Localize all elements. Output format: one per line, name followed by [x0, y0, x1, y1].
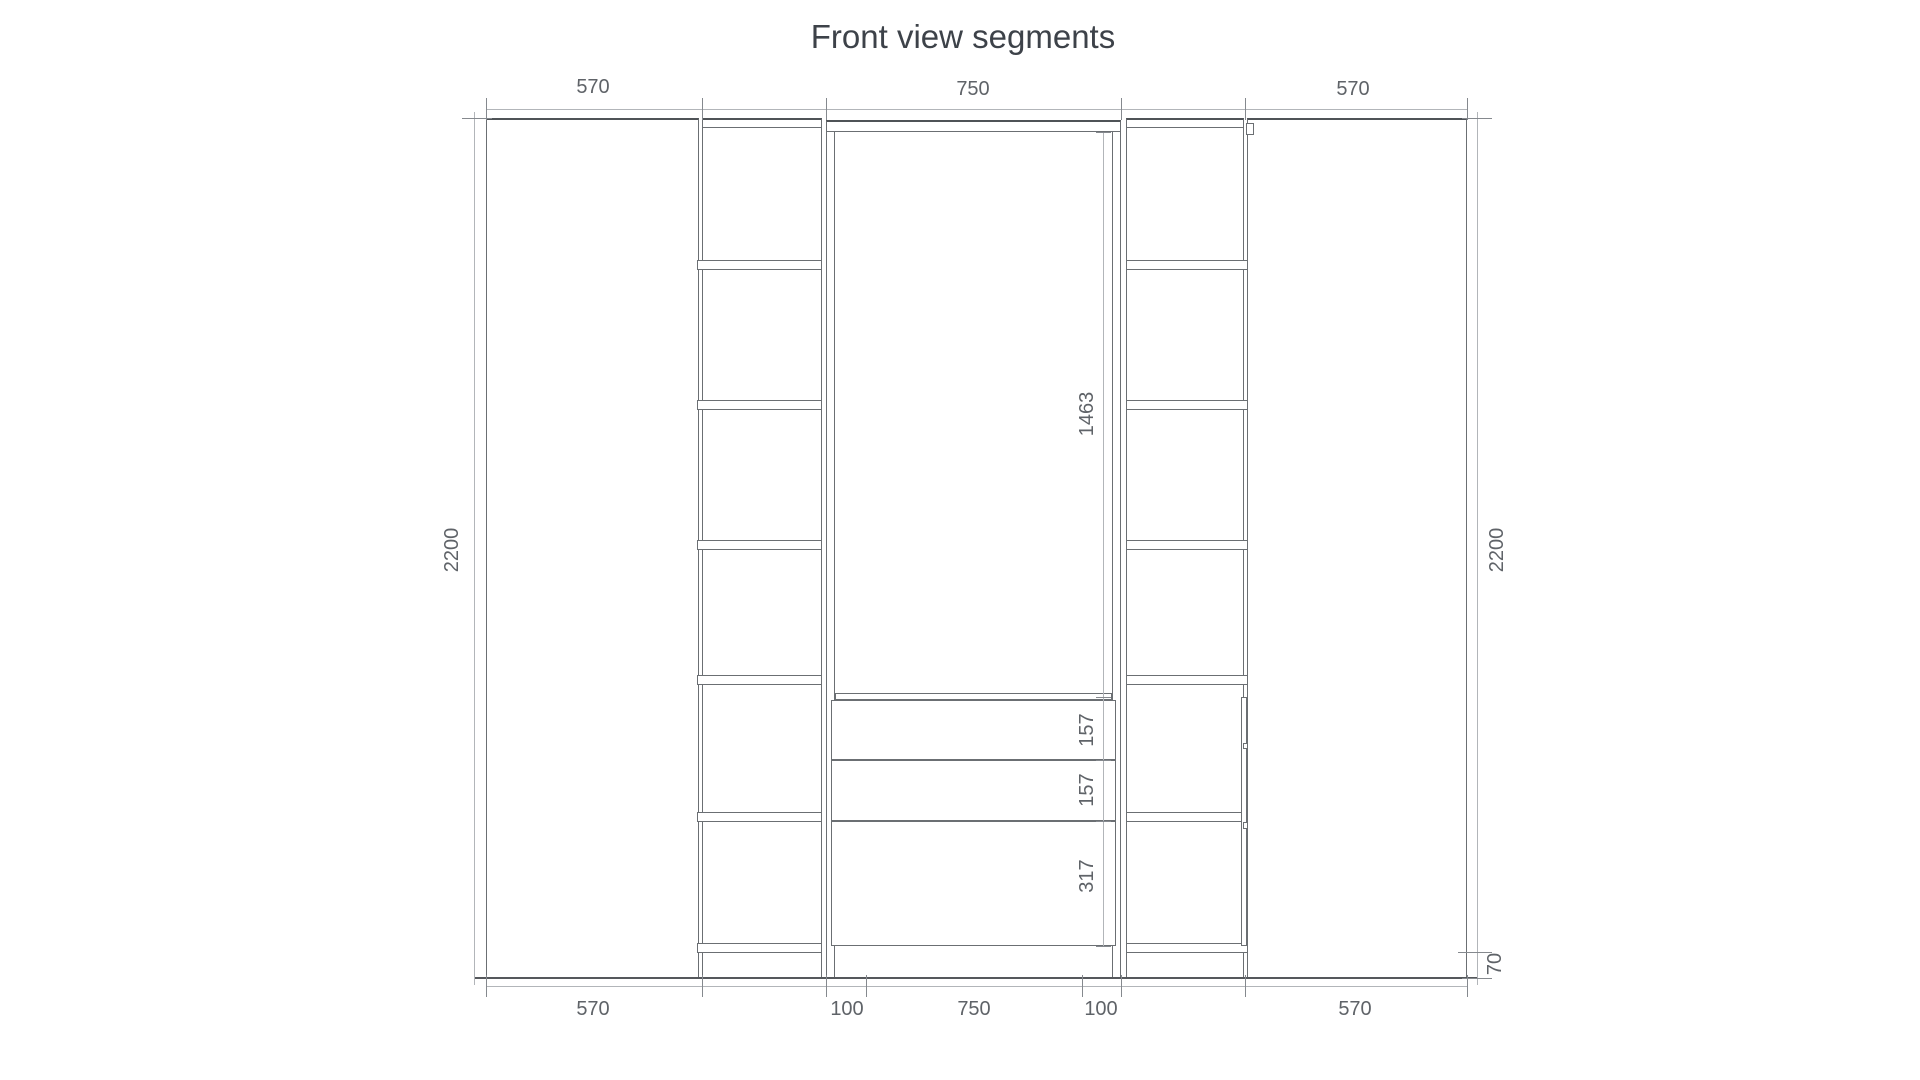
- dimension-line: [486, 109, 1467, 110]
- dim-label-hanging-height: 1463: [1076, 369, 1098, 459]
- shelf-divider: [697, 675, 822, 685]
- dimension-tick: [486, 975, 487, 997]
- dim-label-bottom-left: 570: [553, 998, 633, 1020]
- dim-label-bottom-inset-right: 100: [1061, 998, 1141, 1020]
- dimension-tick: [1096, 697, 1111, 698]
- left-column-top-panel-line: [703, 127, 821, 128]
- shelf-divider: [1126, 400, 1249, 410]
- shelf-divider: [1126, 812, 1249, 822]
- dimension-tick: [1096, 821, 1111, 822]
- shelf-divider: [697, 943, 822, 953]
- dim-label-top-center: 750: [933, 78, 1013, 100]
- drawer-front: [831, 700, 1116, 760]
- shelf-divider: [1126, 675, 1249, 685]
- shelf-divider: [1126, 260, 1249, 270]
- dimension-tick: [826, 98, 827, 120]
- dim-label-drawer-bottom: 317: [1076, 831, 1098, 921]
- dim-label-top-right: 570: [1313, 78, 1393, 100]
- dimension-tick: [1245, 975, 1246, 997]
- dimension-tick: [1082, 975, 1083, 997]
- dim-label-right-height: 2200: [1486, 505, 1508, 595]
- dimension-line: [1477, 112, 1478, 985]
- drawer-front: [831, 821, 1116, 946]
- floor-baseline: [474, 977, 1477, 979]
- dimension-tick: [1096, 760, 1111, 761]
- center-cabinet-top-panel: [826, 120, 1121, 132]
- right-door-panel: [1247, 118, 1467, 978]
- dimension-tick: [1462, 118, 1492, 119]
- dimension-tick: [702, 975, 703, 997]
- shelf-divider: [697, 540, 822, 550]
- dimension-line: [486, 986, 1467, 987]
- dim-label-left-height: 2200: [441, 505, 463, 595]
- dim-label-plinth-height: 70: [1484, 919, 1506, 1009]
- shelf-divider: [697, 812, 822, 822]
- drawing-canvas: Front view segments: [0, 0, 1920, 1080]
- dimension-line: [1103, 132, 1104, 946]
- left-door-panel: [486, 118, 699, 978]
- dim-label-bottom-inset-left: 100: [807, 998, 887, 1020]
- dimension-tick: [1096, 946, 1111, 947]
- dim-label-bottom-right: 570: [1315, 998, 1395, 1020]
- dimension-tick: [1467, 98, 1468, 120]
- drawer-front: [831, 760, 1116, 821]
- dimension-tick: [462, 118, 492, 119]
- right-column-top-panel-line: [1127, 127, 1243, 128]
- dimension-tick: [1121, 975, 1122, 997]
- dimension-tick: [866, 975, 867, 997]
- door-hinge-notch: [1246, 123, 1254, 135]
- dimension-tick: [1121, 98, 1122, 120]
- shelf-divider: [1126, 943, 1249, 953]
- dim-label-bottom-center: 750: [934, 998, 1014, 1020]
- drawer-stack-top-rail: [835, 693, 1112, 700]
- shelf-divider: [1126, 540, 1249, 550]
- dim-label-top-left: 570: [553, 76, 633, 98]
- shelf-divider: [697, 400, 822, 410]
- dimension-tick: [1096, 132, 1111, 133]
- dimension-tick: [702, 98, 703, 120]
- dimension-tick: [826, 975, 827, 997]
- dimension-line: [474, 112, 475, 985]
- dim-label-drawer-middle: 157: [1076, 745, 1098, 835]
- drawing-title: Front view segments: [663, 18, 1263, 56]
- shelf-divider: [697, 260, 822, 270]
- dimension-tick: [486, 98, 487, 120]
- dimension-tick: [1245, 98, 1246, 120]
